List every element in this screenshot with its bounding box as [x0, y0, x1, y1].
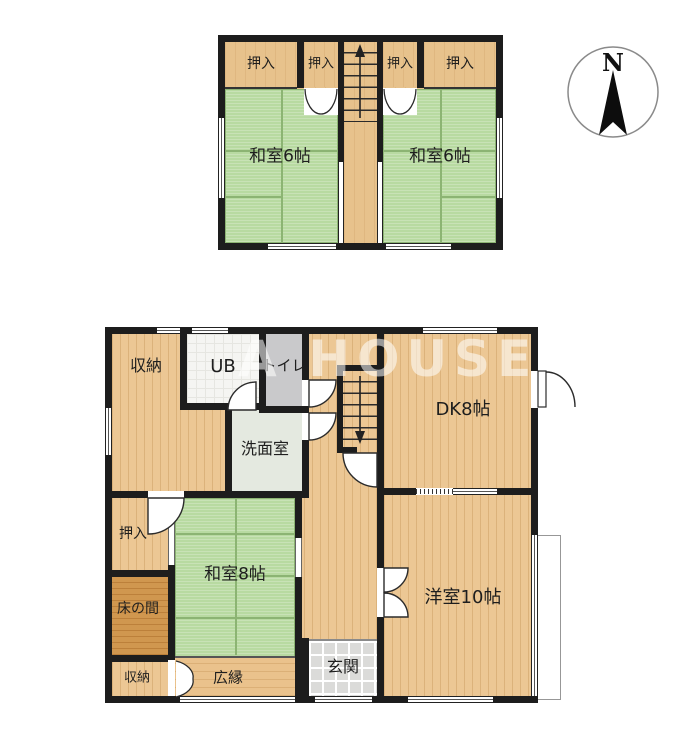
room-label-washitsu6-left: 和室6帖 [249, 149, 311, 166]
window [192, 327, 228, 334]
stair-treads-1f [343, 371, 377, 448]
window [268, 243, 336, 250]
wall [225, 403, 232, 491]
wall [112, 655, 175, 662]
wall [228, 327, 423, 334]
wall [218, 198, 225, 250]
wall [112, 570, 175, 577]
window [408, 696, 493, 703]
room-label-shuno-bottom: 収納 [124, 672, 150, 685]
room-label-washitsu8: 和室8帖 [204, 567, 266, 584]
wall [218, 243, 268, 250]
wall [105, 455, 112, 703]
room-label-shuno-top: 収納 [130, 358, 162, 374]
stair-railing [377, 162, 383, 243]
stair-railing [338, 162, 344, 243]
room-label-oshiire-2f-1: 押入 [247, 57, 275, 71]
door-gap [302, 380, 309, 406]
door-arc [546, 372, 575, 407]
compass-needle [599, 70, 627, 135]
room-label-yoshitsu: 洋室10帖 [425, 589, 502, 607]
room-label-oshiire-2f-2: 押入 [308, 58, 334, 71]
wall [377, 42, 383, 162]
wall [218, 35, 225, 118]
wall [337, 447, 357, 453]
door-gap [168, 660, 175, 696]
room-label-tokonoma: 床の間 [117, 602, 159, 616]
room-label-ub: UB [210, 358, 236, 376]
wall [105, 327, 112, 408]
wall [337, 365, 343, 453]
wall [302, 406, 309, 413]
wall [493, 696, 538, 703]
wall [112, 491, 148, 498]
door-gap [302, 413, 309, 440]
wall [302, 638, 309, 703]
wall [180, 334, 187, 410]
room-label-oshiire-2f-3: 押入 [387, 58, 413, 71]
room-label-toilet: トイレ [261, 359, 306, 374]
window [423, 327, 497, 334]
wall [180, 327, 192, 334]
wall [338, 42, 344, 162]
wall [184, 491, 309, 498]
wall [105, 696, 180, 703]
window [453, 488, 497, 495]
room-label-oshiire-2f-4: 押入 [446, 57, 474, 71]
wall [295, 498, 302, 538]
wall [384, 488, 416, 495]
wall [496, 35, 503, 118]
wall [496, 198, 503, 250]
wall [531, 327, 538, 371]
room-label-hiroen: 広縁 [213, 671, 243, 686]
wall [417, 42, 424, 88]
window [157, 327, 180, 334]
room-label-senmenshitsu: 洗面室 [241, 441, 289, 457]
fusuma-door [168, 505, 175, 565]
window [218, 118, 225, 198]
door-gap [531, 371, 575, 408]
stair-treads-2f [344, 42, 377, 122]
sliding-door [295, 538, 302, 577]
door-gap [148, 491, 184, 498]
window [496, 118, 503, 198]
entrance-door [315, 696, 372, 703]
wall [105, 327, 157, 334]
window [531, 535, 538, 696]
floor-plan-canvas: 押入 押入 押入 押入 和室6帖 和室6帖 収納 UB トイレ 洗面室 押入 床… [0, 0, 687, 737]
wall [297, 42, 304, 88]
window [105, 408, 112, 455]
window [386, 243, 451, 250]
room-label-genkan: 玄関 [327, 659, 359, 675]
compass-north-label: N [598, 48, 628, 77]
wall [531, 407, 538, 535]
door-gap [377, 568, 384, 617]
room-shuno-top-ext [180, 410, 225, 491]
wall [168, 498, 175, 505]
wall [497, 488, 531, 495]
room-label-washitsu6-right: 和室6帖 [409, 149, 471, 166]
wall [377, 617, 384, 703]
wall [295, 577, 302, 696]
wall [218, 35, 503, 42]
room-label-oshiire-1f: 押入 [119, 527, 147, 541]
window [180, 696, 295, 703]
room-label-dk: DK8帖 [435, 401, 490, 419]
door-leaf [538, 371, 546, 407]
wall [336, 243, 386, 250]
wall [180, 403, 228, 410]
wall [337, 365, 384, 371]
bay-window [537, 535, 561, 700]
wall [302, 440, 309, 491]
wall [168, 565, 175, 660]
